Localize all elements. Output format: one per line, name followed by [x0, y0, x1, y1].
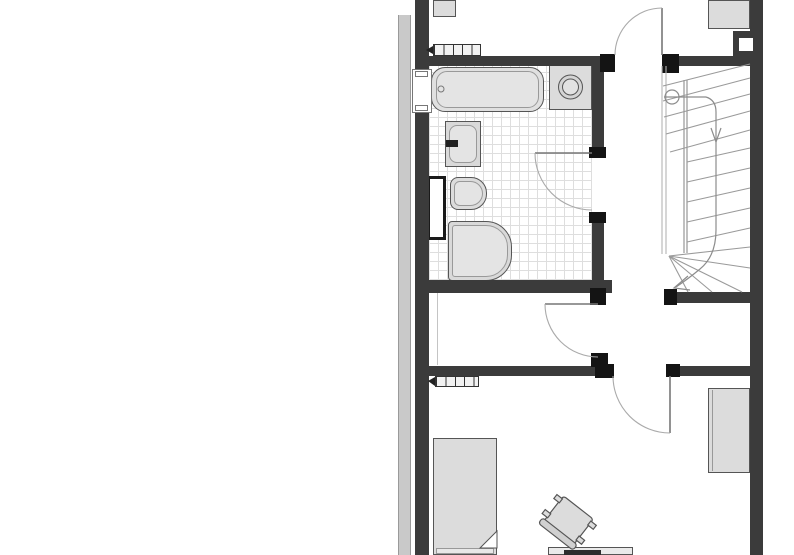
linework-overlay: [0, 0, 794, 555]
winder-staircase: [662, 64, 750, 292]
bed-blanket-fold-icon: [480, 531, 497, 548]
sink-tap-icon: [446, 140, 458, 147]
bathtub-drain-icon: [438, 86, 444, 92]
door-hallway: [545, 304, 598, 357]
washing-machine-door-icon: [559, 75, 583, 99]
door-bedroom: [613, 376, 670, 433]
floor-plan: [0, 0, 794, 555]
radiator-valve-icons: [426, 46, 435, 386]
desk-chair: [536, 492, 598, 552]
door-top-room: [615, 8, 662, 55]
door-bathroom: [535, 153, 592, 210]
